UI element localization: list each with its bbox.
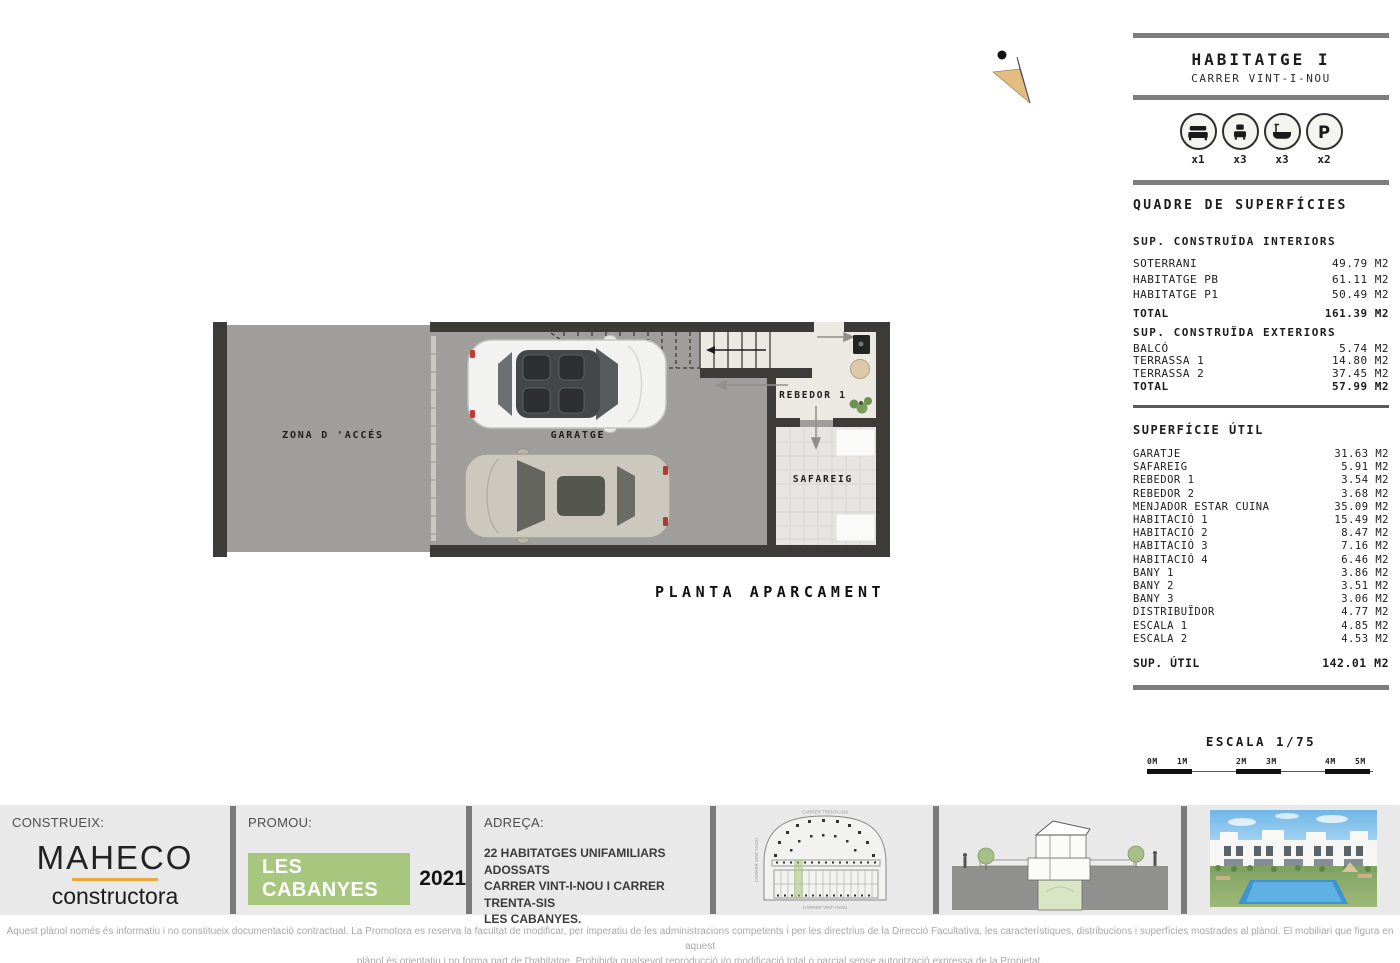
svg-text:CARRER TRENTA-SIS: CARRER TRENTA-SIS [802,810,849,815]
plan-title: PLANTA APARCAMENT [620,583,920,601]
parking-icon: P [1306,113,1343,150]
table-row: DISTRIBUÏDOR 4.77 M2 [1133,606,1389,619]
unit-icons-row: P [1133,113,1389,150]
useful-heading: SUPERFÍCIE ÚTIL [1133,423,1389,437]
bathtub-icon [1264,113,1301,150]
exteriors-rows: BALCÓ 5.74 M2 TERRASSA 1 14.80 M2 TERRAS… [1133,343,1389,381]
bottom-info-strip: CONSTRUEIX: MAHECO constructora PROMOU: … [0,805,1400,915]
scale-tick: 4M [1325,757,1336,766]
interiors-rows: SOTERRANI 49.79 M2 HABITATGE PB 61.11 M2… [1133,256,1389,303]
surfaces-table-title: QUADRE DE SUPERFÍCIES [1133,198,1389,213]
divider-bar [1133,33,1389,38]
builder-brand-sub: constructora [0,883,230,910]
table-row: REBEDOR 1 3.54 M2 [1133,474,1389,487]
table-row: BANY 1 3.86 M2 [1133,567,1389,580]
interiors-total-row: TOTAL 161.39 M2 [1133,307,1389,320]
legal-disclaimer: Aquest plànol només és informatiu i no c… [0,924,1400,963]
scale-title: ESCALA 1/75 [1133,734,1389,749]
room-label-safareig: SAFAREIG [773,474,873,485]
table-row: BANY 3 3.06 M2 [1133,593,1389,606]
divider-bar [1133,95,1389,100]
table-row: SAFAREIG 5.91 M2 [1133,461,1389,474]
table-row: HABITACIÓ 4 6.46 M2 [1133,554,1389,567]
table-row: HABITACIÓ 2 8.47 M2 [1133,527,1389,540]
count-double-bed: x1 [1180,153,1217,166]
builder-label: CONSTRUEIX: [12,815,104,830]
disclaimer-line-1: Aquest plànol només és informatiu i no c… [0,924,1400,954]
builder-section: CONSTRUEIX: MAHECO constructora [0,805,230,915]
table-furniture [851,360,870,379]
useful-total-row: SUP. ÚTIL 142.01 M2 [1133,656,1389,670]
address-label: ADREÇA: [484,815,544,830]
builder-brand: MAHECO [0,839,230,877]
section-elevation [939,805,1181,915]
promoter-label: PROMOU: [248,815,312,830]
svg-text:CARRER VINT-I-NOU: CARRER VINT-I-NOU [803,905,848,910]
table-row: HABITACIÓ 3 7.16 M2 [1133,540,1389,553]
divider-bar [1133,405,1389,408]
disclaimer-line-2: plànol és orientatiu i no forma part de … [0,954,1400,963]
scale-bar: 0M 1M 2M 3M 4M 5M [1147,757,1375,777]
double-bed-icon [1180,113,1217,150]
table-row: HABITATGE P1 50.49 M2 [1133,287,1389,303]
count-bathtub: x3 [1264,153,1301,166]
brand-underline [72,878,158,881]
promoter-year: 2021 [419,867,466,891]
plan-sheet: ZONA D 'ACCÉS GARATGE REBEDOR 1 SAFAREIG… [0,0,1400,963]
count-parking: x2 [1306,153,1343,166]
address-section: ADREÇA: 22 HABITATGES UNIFAMILIARS ADOSS… [472,805,710,915]
surfaces-panel: HABITATGE I CARRER VINT-I-NOU [1133,0,1389,777]
table-row: TERRASSA 2 37.45 M2 [1133,368,1389,381]
room-label-garatge: GARATGE [513,430,643,441]
table-row: HABITACIÓ 1 15.49 M2 [1133,514,1389,527]
promoter-section: PROMOU: LES CABANYES 2021 [236,805,466,915]
unit-subtitle: CARRER VINT-I-NOU [1133,72,1389,85]
building-section-drawing [950,808,1170,912]
interiors-heading: SUP. CONSTRUÏDA INTERIORS [1133,235,1389,248]
scale-tick: 5M [1355,757,1366,766]
scale-tick: 1M [1177,757,1188,766]
scale-tick: 0M [1147,757,1158,766]
project-render-image [1210,810,1377,907]
promoter-logo: LES CABANYES 2021 [248,853,466,905]
table-row: ESCALA 1 4.85 M2 [1133,620,1389,633]
car-silver [465,449,670,544]
unit-icon-counts: x1 x3 x3 x2 [1133,153,1389,166]
table-row: ESCALA 2 4.53 M2 [1133,633,1389,646]
unit-title: HABITATGE I [1133,50,1389,69]
address-text: 22 HABITATGES UNIFAMILIARS ADOSSATS CARR… [484,845,710,928]
table-row: TERRASSA 1 14.80 M2 [1133,355,1389,368]
scale-tick: 3M [1266,757,1277,766]
table-row: REBEDOR 2 3.68 M2 [1133,488,1389,501]
highlighted-unit [794,860,803,898]
count-single-bed: x3 [1222,153,1259,166]
single-bed-icon [1222,113,1259,150]
promoter-name: LES CABANYES [248,853,410,905]
divider-bar [1133,685,1389,690]
divider-bar [1133,180,1389,185]
north-arrow-icon [973,38,1043,113]
exteriors-heading: SUP. CONSTRUÏDA EXTERIORS [1133,326,1389,339]
exteriors-total-row: TOTAL 57.99 M2 [1133,380,1389,393]
builder-logo: MAHECO constructora [0,839,230,910]
table-row: MENJADOR ESTAR CUINA 35.09 M2 [1133,501,1389,514]
table-row: BANY 2 3.51 M2 [1133,580,1389,593]
render-section [1187,805,1400,915]
car-white [468,336,666,433]
table-row: SOTERRANI 49.79 M2 [1133,256,1389,272]
room-label-zona-acces: ZONA D 'ACCÉS [243,430,423,441]
svg-text:CARRER VINT-I-NOU: CARRER VINT-I-NOU [754,838,759,883]
room-label-rebedor: REBEDOR 1 [763,390,863,401]
table-row: HABITATGE PB 61.11 M2 [1133,272,1389,288]
svg-text:P: P [1318,123,1330,142]
useful-rows: GARATJE 31.63 M2 SAFAREIG 5.91 M2 REBEDO… [1133,448,1389,646]
table-row: GARATJE 31.63 M2 [1133,448,1389,461]
floor-plan-drawing: ZONA D 'ACCÉS GARATGE REBEDOR 1 SAFAREIG [213,322,890,557]
site-plan-key-map: CARRER TRENTA-SIS CARRER VINT-I-NOU CARR… [734,808,914,912]
siteplan-section: CARRER TRENTA-SIS CARRER VINT-I-NOU CARR… [716,805,933,915]
scale-tick: 2M [1236,757,1247,766]
